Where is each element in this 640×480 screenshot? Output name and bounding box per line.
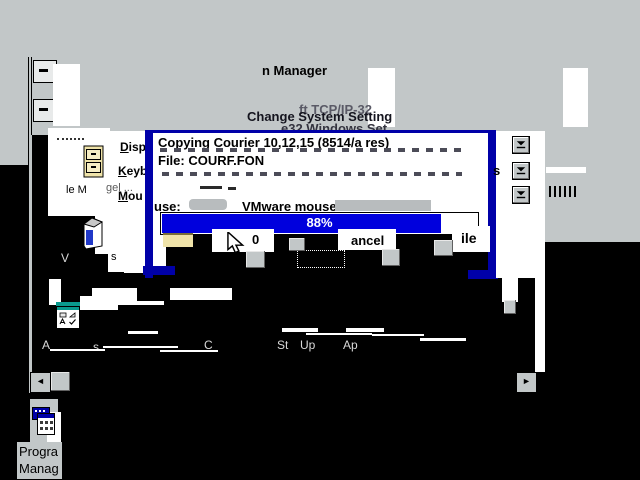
mouse-row-ghost-strip (335, 200, 431, 211)
mouse-label-rest: ou (128, 189, 143, 203)
ghost-text-row-2 (162, 172, 462, 176)
white-strip-far-right (535, 242, 545, 372)
chevron-down-icon (514, 163, 528, 177)
minimize-dash-icon (39, 69, 48, 72)
tools-carton-icon[interactable] (80, 216, 104, 250)
frame-line-2 (31, 57, 32, 135)
white-frag-row-4 (112, 301, 164, 305)
mouse-row-ghost-pill (189, 199, 227, 210)
white-tail-right (502, 278, 518, 302)
pm-label-line1: Progra (19, 444, 58, 459)
ghost-text-row-1 (160, 148, 465, 152)
line-frag-8 (420, 338, 466, 341)
gray-stub-right (504, 300, 516, 314)
scroll-right-button[interactable]: ► (516, 372, 537, 393)
keyboard-dropdown-button[interactable] (512, 162, 530, 180)
tick-marks-fragment (549, 186, 579, 197)
button-fragment-1 (246, 251, 265, 268)
line-frag-9 (128, 331, 158, 334)
ghost-dash-b (228, 187, 236, 190)
program-manager-icon[interactable] (29, 406, 59, 438)
button-fragment-2 (289, 238, 305, 251)
line-frag-4 (282, 328, 318, 332)
mouse-dropdown-button[interactable] (512, 186, 530, 204)
pm-label-line2: Manag (19, 461, 59, 476)
line-frag-3 (160, 350, 218, 352)
text-fragment-s: s (493, 163, 500, 178)
chevron-down-icon (514, 187, 528, 201)
group-label-startup-st: St (277, 338, 288, 352)
dotted-line-fragment (57, 138, 84, 140)
minimize-dash-icon (39, 108, 48, 111)
progress-bar: 88% (160, 212, 479, 235)
line-frag-1 (50, 349, 105, 351)
copy-dialog-border-left (145, 133, 153, 278)
white-streak-right (546, 167, 586, 173)
ghost-dash-a (200, 186, 222, 189)
white-stripe-1 (53, 64, 80, 126)
file-text-fragment: ile (461, 230, 477, 246)
group-label-accessories-a: A (42, 338, 50, 352)
copy-dialog-border-bottom-right (468, 270, 498, 279)
file-manager-label-fragment: le M (66, 184, 87, 196)
display-dropdown-button[interactable] (512, 136, 530, 154)
change-system-settings-title: Change System Setting (247, 109, 392, 124)
progress-percent-label: 88% (161, 215, 478, 230)
chevron-down-icon (514, 137, 528, 151)
mouse-label-hotkey: M (118, 189, 128, 203)
left-gray-strip (0, 135, 28, 165)
white-frag-row-2 (170, 288, 232, 300)
focus-rect-fragment (297, 250, 345, 268)
keyboard-label-hotkey: K (118, 164, 127, 178)
white-stripe-3 (563, 68, 588, 127)
left-window-border (29, 135, 32, 393)
button-fragment-4 (434, 240, 453, 256)
mouse-label: Mou (118, 189, 143, 203)
display-label-hotkey: D (120, 140, 129, 154)
mouse-cursor-icon (226, 232, 246, 259)
scroll-thumb-fragment[interactable] (51, 372, 70, 391)
accessories-group-icon[interactable] (56, 306, 80, 329)
copy-dialog-border-right (488, 133, 496, 274)
display-label: Disp (120, 140, 146, 154)
copy-dialog-border-bottom-left (143, 266, 175, 275)
group-label-accessories-s: s (93, 340, 99, 354)
line-frag-6 (346, 328, 384, 332)
scroll-left-button[interactable]: ◄ (30, 372, 51, 393)
tools-label-fragment-s: s (111, 251, 117, 263)
display-label-rest: isp (129, 140, 146, 154)
line-frag-7 (372, 334, 424, 336)
ok-button-fragment[interactable]: 0 (252, 232, 259, 247)
group-label-startup-up: Up (300, 338, 315, 352)
copy-dialog-file-line: File: COURF.FON (158, 153, 264, 168)
cancel-button-fragment[interactable]: ancel (351, 233, 384, 248)
keyboard-label: Keyb (118, 164, 147, 178)
tools-label-fragment-v: V (61, 251, 69, 265)
program-manager-title-fragment: n Manager (262, 63, 327, 78)
desktop: n Manager ft TCP/IP-32 e32 Windows Set C… (0, 0, 640, 480)
frame-line-1 (28, 57, 29, 135)
line-frag-5 (306, 333, 372, 335)
folder-fragment (163, 233, 193, 247)
button-fragment-3 (382, 249, 400, 266)
group-label-applications: Ap (343, 338, 358, 352)
file-manager-icon[interactable] (83, 145, 105, 178)
line-frag-2 (103, 346, 178, 348)
